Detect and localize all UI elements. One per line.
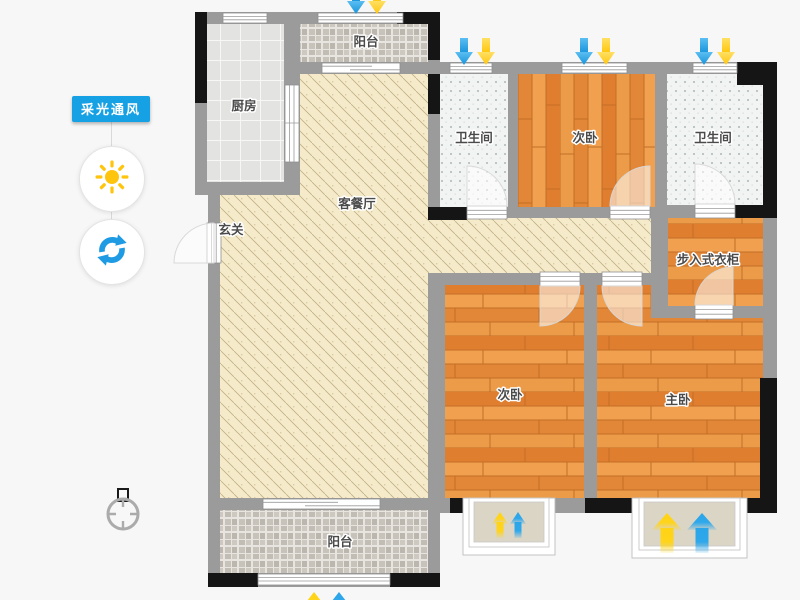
room-label-closet: 步入式衣柜	[677, 252, 740, 267]
room-label-master: 主卧	[665, 392, 691, 407]
door	[610, 206, 650, 219]
bay-window	[632, 498, 747, 558]
window	[322, 63, 400, 73]
hallway-floor	[428, 218, 651, 273]
room-label-entry: 玄关	[218, 222, 244, 237]
sun-icon	[94, 159, 130, 200]
window	[263, 499, 380, 509]
window	[258, 574, 390, 585]
down-arrow-pair	[455, 38, 495, 65]
down-arrow-pair	[575, 38, 615, 65]
compass-icon	[108, 489, 138, 529]
entry-door-swing	[174, 223, 214, 263]
bay-window	[463, 498, 555, 555]
balcony-bottom-floor	[220, 510, 428, 573]
room-label-bathroom1: 卫生间	[455, 130, 493, 145]
connector-line	[111, 118, 112, 146]
up-arrow-pair-clipped	[303, 592, 350, 600]
window	[318, 13, 403, 23]
door	[602, 272, 642, 286]
room-label-balcony-bottom: 阳台	[327, 534, 352, 549]
window	[693, 63, 737, 73]
daylight-ventilation-badge[interactable]: 采光通风	[72, 96, 150, 122]
window	[223, 13, 267, 23]
door	[695, 204, 735, 218]
room-label-bedroom-top: 次卧	[572, 130, 598, 145]
floorplan-screen: 采光通风	[0, 0, 800, 600]
room-label-living: 客餐厅	[337, 196, 376, 211]
connector-line	[111, 211, 112, 219]
window	[562, 63, 627, 73]
room-label-bedroom-bottom: 次卧	[497, 387, 523, 402]
door	[467, 206, 507, 219]
door	[695, 305, 733, 319]
daylight-button[interactable]	[79, 146, 145, 212]
room-label-kitchen: 厨房	[231, 98, 256, 113]
living-floor-upper	[300, 74, 428, 195]
floorplan-svg: 厨房 阳台 客餐厅 玄关 卫生间 次卧 卫生间 步入式衣柜 次卧 主卧 阳台	[0, 0, 800, 600]
kitchen-sliding-door	[285, 85, 299, 162]
rotate-icon	[95, 233, 129, 272]
down-arrow-pair	[695, 38, 735, 65]
room-label-balcony-top: 阳台	[353, 34, 378, 49]
living-floor-main	[220, 195, 428, 498]
down-arrow-pair-clipped	[347, 0, 386, 14]
room-label-bathroom2: 卫生间	[694, 130, 732, 145]
door	[540, 272, 580, 286]
rotate-button[interactable]	[79, 219, 145, 285]
